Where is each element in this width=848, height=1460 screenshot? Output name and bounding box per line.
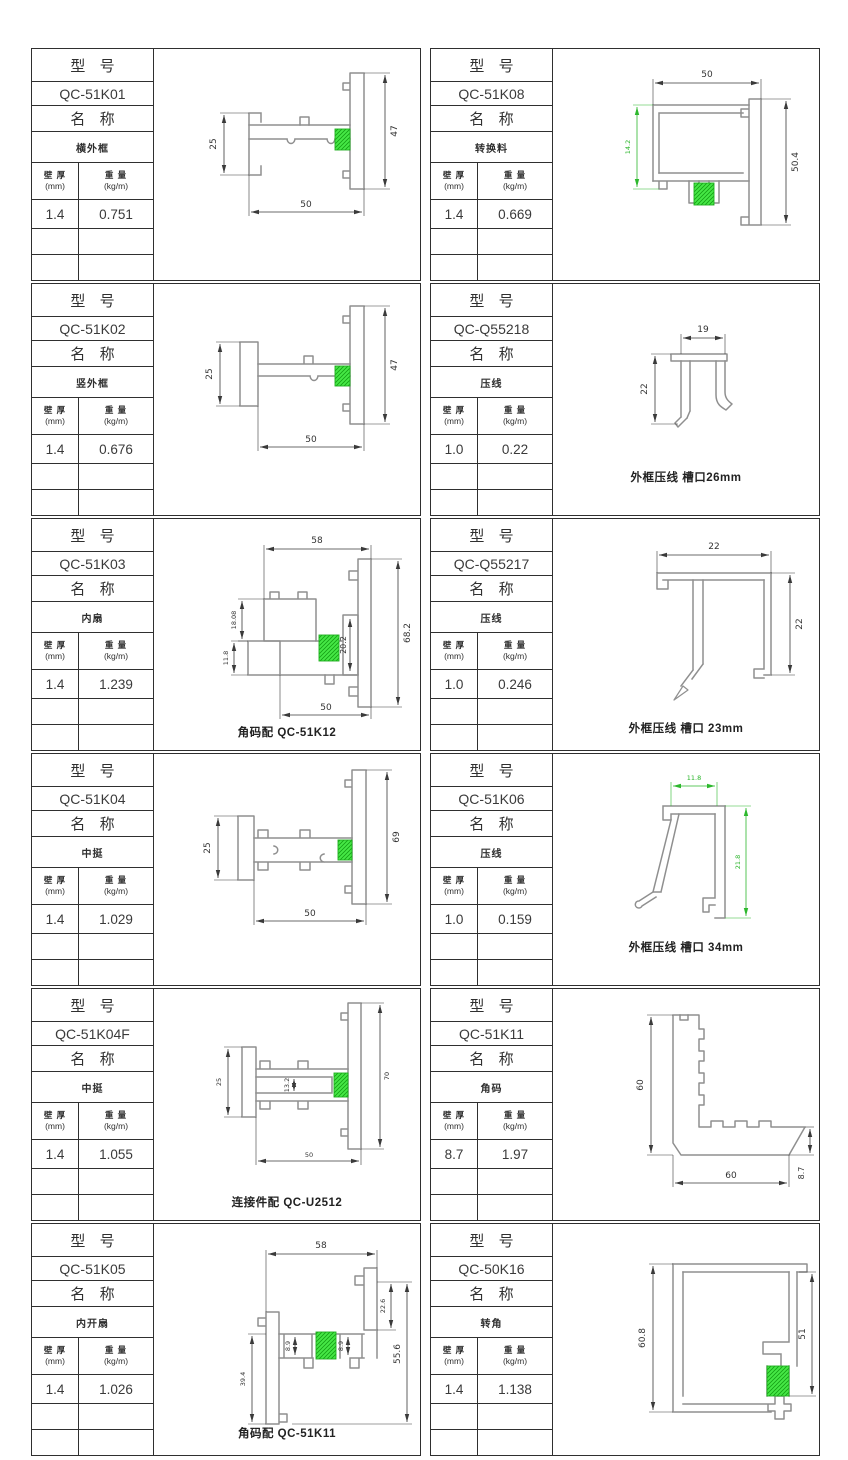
dim-label: 22	[795, 618, 805, 629]
name-value: 转换料	[431, 132, 552, 163]
drawing-area: 25 13.2 70 50 连接件配 QC-U2512	[154, 989, 420, 1220]
thickness-value: 1.4	[32, 670, 79, 698]
panel-qc-51k05: 型 号 QC-51K05 名 称 内开扇 壁 厚(mm) 重 量(kg/m) 1…	[31, 1223, 421, 1456]
dim-label: 22	[708, 542, 719, 552]
spec-table: 型 号 QC-51K06 名 称 压线 壁 厚(mm) 重 量(kg/m) 1.…	[431, 754, 553, 985]
value-row: 1.4 0.751	[32, 200, 153, 229]
empty-row	[431, 1404, 552, 1430]
name-header: 名 称	[32, 576, 153, 602]
thickness-value: 1.4	[431, 1375, 478, 1403]
name-value: 转角	[431, 1307, 552, 1338]
dim-label: 51	[798, 1328, 808, 1339]
drawing-area: 25 47 50	[154, 284, 420, 515]
name-header: 名 称	[431, 106, 552, 132]
dim-label: 8.9	[337, 1341, 345, 1351]
name-header: 名 称	[431, 1046, 552, 1072]
dim-label: 22	[640, 383, 650, 394]
dim-label: 55.6	[393, 1344, 403, 1364]
profile-drawing: 22 22	[553, 519, 819, 750]
spec-table: 型 号 QC-51K05 名 称 内开扇 壁 厚(mm) 重 量(kg/m) 1…	[32, 1224, 154, 1455]
panel-qc-51k03: 型 号 QC-51K03 名 称 内扇 壁 厚(mm) 重 量(kg/m) 1.…	[31, 518, 421, 751]
model-value: QC-51K05	[32, 1257, 153, 1281]
profile-drawing: 60 60 8.7	[553, 989, 819, 1220]
name-value: 竖外框	[32, 367, 153, 398]
model-value: QC-51K03	[32, 552, 153, 576]
name-header: 名 称	[32, 811, 153, 837]
col-headers: 壁 厚(mm) 重 量(kg/m)	[32, 1338, 153, 1375]
value-row: 1.4 0.669	[431, 200, 552, 229]
drawing-note: 角码配 QC-51K11	[154, 1425, 420, 1441]
dim-label: 21.8	[734, 855, 742, 869]
dim-label: 25	[215, 1078, 223, 1086]
panel-qc-q55218: 型 号 QC-Q55218 名 称 压线 壁 厚(mm) 重 量(kg/m) 1…	[430, 283, 820, 516]
dimensions: 25 47 50	[209, 73, 400, 216]
panel-qc-50k16: 型 号 QC-50K16 名 称 转角 壁 厚(mm) 重 量(kg/m) 1.…	[430, 1223, 820, 1456]
model-value: QC-51K11	[431, 1022, 552, 1046]
value-row: 1.4 1.055	[32, 1140, 153, 1169]
spec-table: 型 号 QC-Q55218 名 称 压线 壁 厚(mm) 重 量(kg/m) 1…	[431, 284, 553, 515]
drawing-note: 外框压线 槽口 34mm	[553, 939, 819, 955]
dim-label: 8.9	[284, 1341, 292, 1351]
model-value: QC-50K16	[431, 1257, 552, 1281]
thickness-value: 1.4	[32, 1375, 79, 1403]
thermal-break-marker	[319, 635, 339, 661]
empty-row	[431, 725, 552, 750]
weight-value: 0.669	[478, 200, 552, 228]
dimensions: 25 47 50	[205, 306, 400, 451]
empty-row	[32, 1404, 153, 1430]
model-header: 型 号	[431, 519, 552, 552]
empty-row	[32, 725, 153, 750]
value-row: 1.4 1.026	[32, 1375, 153, 1404]
dim-label: 11.8	[222, 651, 230, 665]
model-header: 型 号	[32, 49, 153, 82]
panel-qc-51k02: 型 号 QC-51K02 名 称 竖外框 壁 厚(mm) 重 量(kg/m) 1…	[31, 283, 421, 516]
thickness-value: 1.4	[32, 1140, 79, 1168]
dim-label: 22.6	[379, 1299, 387, 1313]
profile-drawing: 58 20.2 68.2 50 18.08 11.8	[154, 519, 420, 750]
model-value: QC-51K01	[32, 82, 153, 106]
spec-table: 型 号 QC-51K01 名 称 横外框 壁 厚(mm) 重 量(kg/m) 1…	[32, 49, 154, 280]
spec-table: 型 号 QC-51K08 名 称 转换料 壁 厚(mm) 重 量(kg/m) 1…	[431, 49, 553, 280]
thermal-break-marker	[335, 129, 350, 150]
weight-value: 1.055	[79, 1140, 153, 1168]
col-headers: 壁 厚(mm) 重 量(kg/m)	[431, 1338, 552, 1375]
thermal-break-marker	[335, 366, 350, 386]
name-value: 横外框	[32, 132, 153, 163]
drawing-area: 25 69 50	[154, 754, 420, 985]
empty-row	[32, 229, 153, 255]
name-value: 内扇	[32, 602, 153, 633]
name-header: 名 称	[32, 106, 153, 132]
col-headers: 壁 厚(mm) 重 量(kg/m)	[431, 163, 552, 200]
weight-value: 1.97	[478, 1140, 552, 1168]
col-headers: 壁 厚(mm) 重 量(kg/m)	[431, 633, 552, 670]
dimensions: 11.8 21.8	[671, 774, 751, 918]
thermal-break-marker	[694, 183, 714, 205]
profile-outline	[673, 1015, 805, 1155]
drawing-area: 58 20.2 68.2 50 18.08 11.8 角码	[154, 519, 420, 750]
name-header: 名 称	[431, 341, 552, 367]
profile-outline	[238, 770, 366, 904]
model-header: 型 号	[32, 284, 153, 317]
model-header: 型 号	[431, 49, 552, 82]
empty-row	[431, 490, 552, 515]
dim-label: 39.4	[239, 1372, 247, 1386]
model-value: QC-51K04F	[32, 1022, 153, 1046]
col-headers: 壁 厚(mm) 重 量(kg/m)	[431, 398, 552, 435]
thickness-value: 1.0	[431, 670, 478, 698]
drawing-area: 50 50.4 14.2	[553, 49, 819, 280]
spec-table: 型 号 QC-50K16 名 称 转角 壁 厚(mm) 重 量(kg/m) 1.…	[431, 1224, 553, 1455]
weight-value: 0.159	[478, 905, 552, 933]
model-header: 型 号	[431, 754, 552, 787]
dimensions: 25 69 50	[203, 770, 402, 925]
profile-outline	[240, 306, 364, 424]
thickness-value: 1.4	[431, 200, 478, 228]
thickness-header: 壁 厚	[44, 169, 66, 182]
profile-drawing: 58 22.6 55.6 39.4 8.9 8.9	[154, 1224, 420, 1455]
empty-row	[431, 960, 552, 985]
panel-qc-q55217: 型 号 QC-Q55217 名 称 压线 壁 厚(mm) 重 量(kg/m) 1…	[430, 518, 820, 751]
panel-qc-51k06: 型 号 QC-51K06 名 称 压线 壁 厚(mm) 重 量(kg/m) 1.…	[430, 753, 820, 986]
dim-label: 68.2	[403, 623, 413, 643]
spec-table: 型 号 QC-51K04 名 称 中挺 壁 厚(mm) 重 量(kg/m) 1.…	[32, 754, 154, 985]
empty-row	[431, 934, 552, 960]
empty-row	[32, 1195, 153, 1220]
name-header: 名 称	[431, 811, 552, 837]
spec-table: 型 号 QC-51K04F 名 称 中挺 壁 厚(mm) 重 量(kg/m) 1…	[32, 989, 154, 1220]
name-value: 压线	[431, 367, 552, 398]
dim-label: 50	[305, 435, 317, 445]
profile-drawing: 60.8 51	[553, 1224, 819, 1455]
model-header: 型 号	[431, 989, 552, 1022]
profile-drawing: 25 47 50	[154, 49, 420, 280]
col-headers: 壁 厚(mm) 重 量(kg/m)	[32, 398, 153, 435]
panel-qc-51k11: 型 号 QC-51K11 名 称 角码 壁 厚(mm) 重 量(kg/m) 8.…	[430, 988, 820, 1221]
dimensions: 19 22	[640, 325, 725, 424]
panel-qc-51k08: 型 号 QC-51K08 名 称 转换料 壁 厚(mm) 重 量(kg/m) 1…	[430, 48, 820, 281]
name-value: 角码	[431, 1072, 552, 1103]
spec-table: 型 号 QC-51K11 名 称 角码 壁 厚(mm) 重 量(kg/m) 8.…	[431, 989, 553, 1220]
value-row: 1.0 0.159	[431, 905, 552, 934]
dim-label: 50	[701, 70, 713, 80]
dim-label: 70	[383, 1072, 391, 1080]
value-row: 8.7 1.97	[431, 1140, 552, 1169]
spec-table: 型 号 QC-Q55217 名 称 压线 壁 厚(mm) 重 量(kg/m) 1…	[431, 519, 553, 750]
thickness-value: 1.0	[431, 435, 478, 463]
dim-label: 58	[311, 536, 323, 546]
empty-row	[32, 255, 153, 280]
drawing-area: 25 47 50	[154, 49, 420, 280]
name-value: 内开扇	[32, 1307, 153, 1338]
drawing-note: 外框压线 槽口 23mm	[553, 720, 819, 736]
name-value: 压线	[431, 837, 552, 868]
dim-label: 20.2	[339, 636, 348, 654]
thermal-break-marker	[334, 1073, 348, 1097]
empty-row	[431, 1169, 552, 1195]
profile-drawing: 25 69 50	[154, 754, 420, 985]
value-row: 1.0 0.246	[431, 670, 552, 699]
empty-row	[32, 934, 153, 960]
dim-label: 50	[305, 1151, 313, 1159]
model-header: 型 号	[431, 284, 552, 317]
weight-value: 1.138	[478, 1375, 552, 1403]
dim-label: 11.8	[687, 774, 701, 782]
drawing-area: 22 22 外框压线 槽口 23mm	[553, 519, 819, 750]
dim-label: 13.2	[283, 1078, 291, 1092]
dim-label: 50.4	[791, 152, 801, 172]
thickness-value: 1.4	[32, 905, 79, 933]
empty-row	[32, 699, 153, 725]
drawing-note: 外框压线 槽口26mm	[553, 469, 819, 485]
dimensions: 58 20.2 68.2 50 18.08 11.8	[222, 536, 413, 719]
dim-label: 69	[392, 831, 402, 843]
drawing-area: 11.8 21.8 外框压线 槽口 34mm	[553, 754, 819, 985]
dim-label: 47	[390, 359, 400, 370]
profile-outline	[653, 99, 761, 225]
panel-qc-51k01: 型 号 QC-51K01 名 称 横外框 壁 厚(mm) 重 量(kg/m) 1…	[31, 48, 421, 281]
profile-drawing: 25 47 50	[154, 284, 420, 515]
model-value: QC-51K08	[431, 82, 552, 106]
weight-value: 0.676	[79, 435, 153, 463]
model-header: 型 号	[32, 519, 153, 552]
catalog-sheet: 型 号 QC-51K01 名 称 横外框 壁 厚(mm) 重 量(kg/m) 1…	[31, 48, 820, 1456]
dim-label: 60	[636, 1079, 646, 1091]
dimensions: 60 60 8.7	[636, 1015, 814, 1187]
dimensions: 22 22	[657, 542, 805, 675]
profile-drawing: 50 50.4 14.2	[553, 49, 819, 280]
dim-label: 47	[390, 125, 400, 136]
profile-outline	[635, 806, 725, 918]
value-row: 1.4 0.676	[32, 435, 153, 464]
col-headers: 壁 厚(mm) 重 量(kg/m)	[32, 868, 153, 905]
weight-value: 0.22	[478, 435, 552, 463]
col-headers: 壁 厚(mm) 重 量(kg/m)	[32, 633, 153, 670]
thermal-break-marker	[316, 1332, 336, 1359]
value-row: 1.0 0.22	[431, 435, 552, 464]
weight-value: 1.026	[79, 1375, 153, 1403]
dim-label: 25	[209, 138, 219, 149]
profile-outline	[671, 354, 732, 427]
spec-table: 型 号 QC-51K02 名 称 竖外框 壁 厚(mm) 重 量(kg/m) 1…	[32, 284, 154, 515]
weight-value: 1.029	[79, 905, 153, 933]
drawing-area: 58 22.6 55.6 39.4 8.9 8.9 角码配 QC-51K11	[154, 1224, 420, 1455]
dim-label: 58	[315, 1241, 327, 1251]
name-value: 中挺	[32, 1072, 153, 1103]
dim-label: 18.08	[230, 611, 238, 630]
model-header: 型 号	[431, 1224, 552, 1257]
name-header: 名 称	[32, 1046, 153, 1072]
name-header: 名 称	[32, 1281, 153, 1307]
panel-qc-51k04: 型 号 QC-51K04 名 称 中挺 壁 厚(mm) 重 量(kg/m) 1.…	[31, 753, 421, 986]
model-value: QC-Q55217	[431, 552, 552, 576]
drawing-area: 60.8 51	[553, 1224, 819, 1455]
empty-row	[32, 960, 153, 985]
value-row: 1.4 1.138	[431, 1375, 552, 1404]
thermal-break-marker	[767, 1366, 789, 1396]
thickness-value: 8.7	[431, 1140, 478, 1168]
profile-outline	[657, 573, 771, 700]
model-value: QC-Q55218	[431, 317, 552, 341]
model-value: QC-51K06	[431, 787, 552, 811]
name-value: 中挺	[32, 837, 153, 868]
thickness-value: 1.4	[32, 200, 79, 228]
model-header: 型 号	[32, 754, 153, 787]
weight-value: 0.751	[79, 200, 153, 228]
empty-row	[431, 1195, 552, 1220]
dim-label: 50	[320, 703, 332, 713]
dim-label: 14.2	[624, 140, 632, 154]
weight-header: 重 量	[105, 169, 127, 182]
model-header: 型 号	[32, 989, 153, 1022]
model-value: QC-51K02	[32, 317, 153, 341]
weight-value: 1.239	[79, 670, 153, 698]
empty-row	[431, 464, 552, 490]
model-header: 型 号	[32, 1224, 153, 1257]
drawing-note: 连接件配 QC-U2512	[154, 1194, 420, 1210]
dim-label: 60.8	[638, 1328, 648, 1348]
drawing-area: 19 22 外框压线 槽口26mm	[553, 284, 819, 515]
empty-row	[32, 1430, 153, 1455]
col-headers: 壁 厚(mm) 重 量(kg/m)	[32, 163, 153, 200]
drawing-area: 60 60 8.7	[553, 989, 819, 1220]
dim-label: 50	[304, 909, 316, 919]
dim-label: 25	[203, 842, 213, 853]
empty-row	[431, 255, 552, 280]
value-row: 1.4 1.239	[32, 670, 153, 699]
empty-row	[32, 1169, 153, 1195]
name-header: 名 称	[431, 1281, 552, 1307]
dim-label: 19	[697, 325, 709, 335]
profile-outline	[248, 559, 371, 707]
model-value: QC-51K04	[32, 787, 153, 811]
dim-label: 50	[300, 200, 312, 210]
value-row: 1.4 1.029	[32, 905, 153, 934]
col-headers: 壁 厚(mm) 重 量(kg/m)	[431, 868, 552, 905]
thickness-value: 1.0	[431, 905, 478, 933]
name-header: 名 称	[431, 576, 552, 602]
weight-value: 0.246	[478, 670, 552, 698]
thickness-value: 1.4	[32, 435, 79, 463]
profile-drawing: 25 13.2 70 50	[154, 989, 420, 1220]
panel-qc-51k04f: 型 号 QC-51K04F 名 称 中挺 壁 厚(mm) 重 量(kg/m) 1…	[31, 988, 421, 1221]
name-header: 名 称	[32, 341, 153, 367]
empty-row	[431, 699, 552, 725]
empty-row	[32, 490, 153, 515]
dim-label: 60	[725, 1171, 737, 1181]
empty-row	[32, 464, 153, 490]
name-value: 压线	[431, 602, 552, 633]
empty-row	[431, 1430, 552, 1455]
col-headers: 壁 厚(mm) 重 量(kg/m)	[32, 1103, 153, 1140]
dim-label: 25	[205, 368, 215, 379]
spec-table: 型 号 QC-51K03 名 称 内扇 壁 厚(mm) 重 量(kg/m) 1.…	[32, 519, 154, 750]
empty-row	[431, 229, 552, 255]
drawing-note: 角码配 QC-51K12	[154, 724, 420, 740]
thermal-break-marker	[338, 840, 352, 860]
col-headers: 壁 厚(mm) 重 量(kg/m)	[431, 1103, 552, 1140]
dim-label: 8.7	[797, 1167, 806, 1180]
